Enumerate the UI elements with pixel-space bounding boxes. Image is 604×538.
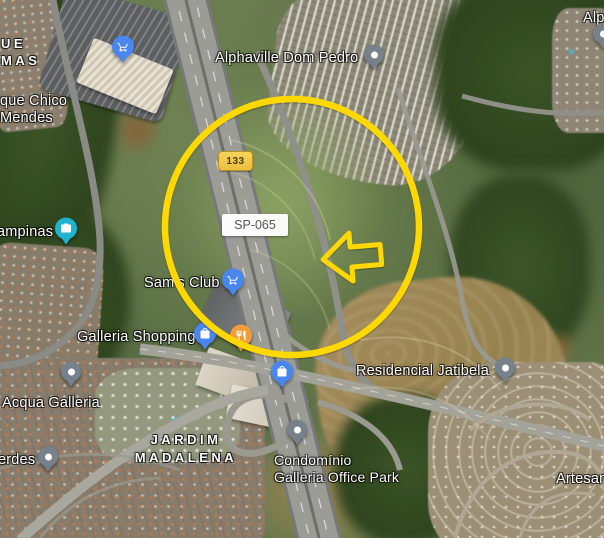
place-label-chico-mendes-line2[interactable]: Mendes	[0, 110, 53, 126]
acqua-galleria-place-pin[interactable]	[61, 362, 81, 387]
place-label-galleria-shopping[interactable]: Galleria Shopping	[77, 329, 196, 345]
pin-pointer	[598, 42, 604, 49]
place-label-condominio-line1[interactable]: Condomínio	[274, 452, 352, 468]
alphaville-place-pin[interactable]	[364, 45, 384, 70]
pin-circle	[112, 36, 134, 58]
terrain-residential-bottomright	[428, 362, 604, 538]
place-label-sams-club[interactable]: Sam's Club	[144, 275, 220, 291]
sams-club-cart-pin[interactable]	[222, 269, 244, 296]
pin-circle	[194, 323, 216, 345]
campinas-photo-pin[interactable]	[55, 218, 77, 245]
alp-edge-place-pin[interactable]	[593, 24, 604, 49]
pin-pointer	[277, 381, 287, 388]
pin-pointer	[236, 345, 246, 352]
pin-pointer	[43, 465, 53, 472]
pin-pointer	[369, 63, 379, 70]
office-shopping-bag-pin[interactable]	[271, 361, 293, 388]
pin-circle	[61, 362, 81, 382]
shopping-cart-icon	[227, 274, 239, 286]
place-label-artesan-edge[interactable]: Artesan	[556, 471, 604, 487]
condominio-place-pin[interactable]	[287, 420, 307, 445]
pin-pointer	[66, 380, 76, 387]
place-label-campinas[interactable]: ampinas	[0, 224, 53, 240]
place-dot-icon	[502, 364, 509, 371]
pin-circle	[495, 358, 515, 378]
pin-circle	[222, 269, 244, 291]
place-label-condominio-line2[interactable]: Galleria Office Park	[274, 469, 399, 485]
pin-circle	[230, 325, 252, 347]
pin-circle	[364, 45, 384, 65]
place-label-residencial-jatibela[interactable]: Residencial Jatibela	[356, 363, 489, 379]
place-dot-icon	[371, 51, 378, 58]
camera-icon	[60, 223, 72, 235]
district-label-jardim-line1: JARDIM	[151, 432, 222, 447]
pin-pointer	[228, 289, 238, 296]
pin-pointer	[200, 343, 210, 350]
mall-shopping-cart-pin[interactable]	[112, 36, 134, 63]
place-dot-icon	[294, 426, 301, 433]
shopping-bag-icon	[199, 328, 211, 340]
jatibela-place-pin[interactable]	[495, 358, 515, 383]
restaurant-pin[interactable]	[230, 325, 252, 352]
pin-circle	[593, 24, 604, 44]
pin-circle	[271, 361, 293, 383]
verdes-place-pin[interactable]	[38, 447, 58, 472]
pin-circle	[38, 447, 58, 467]
pin-circle	[287, 420, 307, 440]
shopping-cart-icon	[117, 41, 129, 53]
fork-knife-icon	[235, 330, 247, 342]
pin-pointer	[61, 238, 71, 245]
place-dot-icon	[45, 453, 52, 460]
place-dot-icon	[600, 30, 604, 37]
road-shield-133: 133	[218, 151, 253, 171]
pin-pointer	[292, 438, 302, 445]
place-label-alphaville-dom-pedro[interactable]: Alphaville Dom Pedro	[215, 50, 358, 66]
place-label-chico-mendes-line1[interactable]: que Chico	[0, 93, 67, 109]
pin-pointer	[500, 376, 510, 383]
shopping-bag-icon	[276, 366, 288, 378]
satellite-map-canvas[interactable]: 133 SP-065 UE MAS que Chico Mendes ampin…	[0, 0, 604, 538]
district-label-jardim-line2: MADALENA	[135, 450, 237, 465]
road-label-sp065: SP-065	[222, 214, 288, 236]
pin-circle	[55, 218, 77, 240]
place-dot-icon	[68, 368, 75, 375]
place-label-verdes-edge[interactable]: erdes	[0, 452, 35, 468]
galleria-shopping-bag-pin[interactable]	[194, 323, 216, 350]
district-label-parque-line2: MAS	[1, 53, 40, 68]
pin-pointer	[118, 56, 128, 63]
district-label-parque-line1: UE	[1, 36, 26, 51]
place-label-acqua-galleria[interactable]: Acqua Galleria	[2, 395, 100, 411]
